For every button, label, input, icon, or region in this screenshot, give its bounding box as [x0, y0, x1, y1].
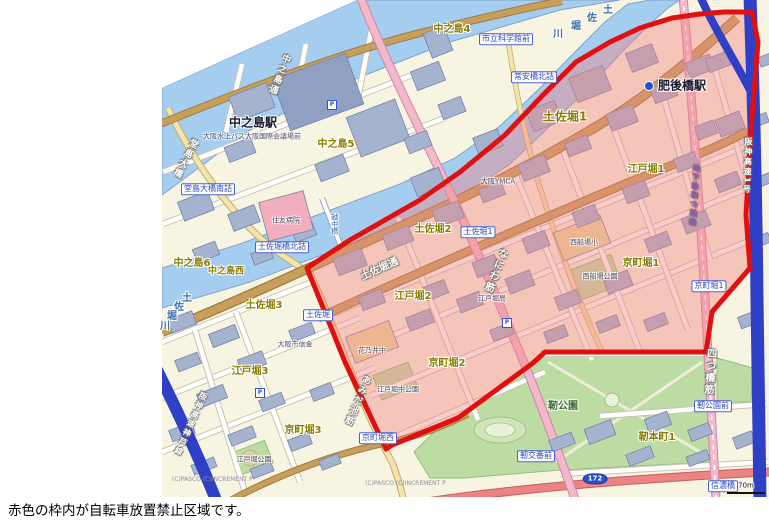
- map-caption: 赤色の枠内が自転車放置禁止区域です。: [8, 499, 250, 519]
- map-graphics: [0, 0, 769, 532]
- city-map-image: 中之島4中之島5中之島6中之島西土佐堀1土佐堀2土佐堀3江戸堀1江戸堀2江戸堀3…: [0, 0, 769, 532]
- page: 中之島4中之島5中之島6中之島西土佐堀1土佐堀2土佐堀3江戸堀1江戸堀2江戸堀3…: [0, 0, 769, 532]
